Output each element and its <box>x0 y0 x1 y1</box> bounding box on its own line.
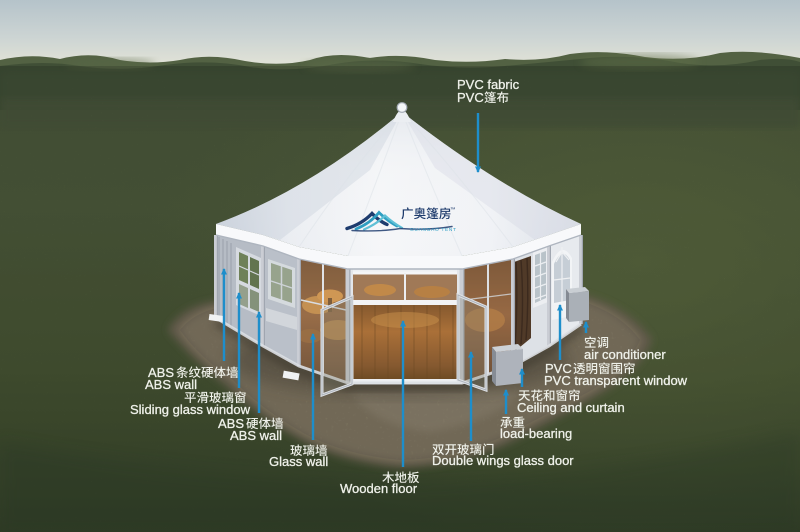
svg-text:™: ™ <box>450 207 456 213</box>
svg-text:ABS wall: ABS wall <box>230 428 282 443</box>
svg-text:Double wings glass door: Double wings glass door <box>432 453 574 468</box>
svg-text:air conditioner: air conditioner <box>584 347 666 362</box>
svg-text:PVC transparent window: PVC transparent window <box>544 373 688 388</box>
svg-text:GUANGAO TENT: GUANGAO TENT <box>410 227 457 233</box>
svg-text:ABS wall: ABS wall <box>145 377 197 392</box>
svg-text:Wooden floor: Wooden floor <box>340 481 418 496</box>
svg-text:Ceiling and curtain: Ceiling and curtain <box>517 400 625 415</box>
svg-text:PVC: PVC <box>457 90 484 105</box>
svg-text:Glass wall: Glass wall <box>269 454 328 469</box>
svg-text:Sliding glass window: Sliding glass window <box>130 402 251 417</box>
svg-text:load-bearing: load-bearing <box>500 426 572 441</box>
